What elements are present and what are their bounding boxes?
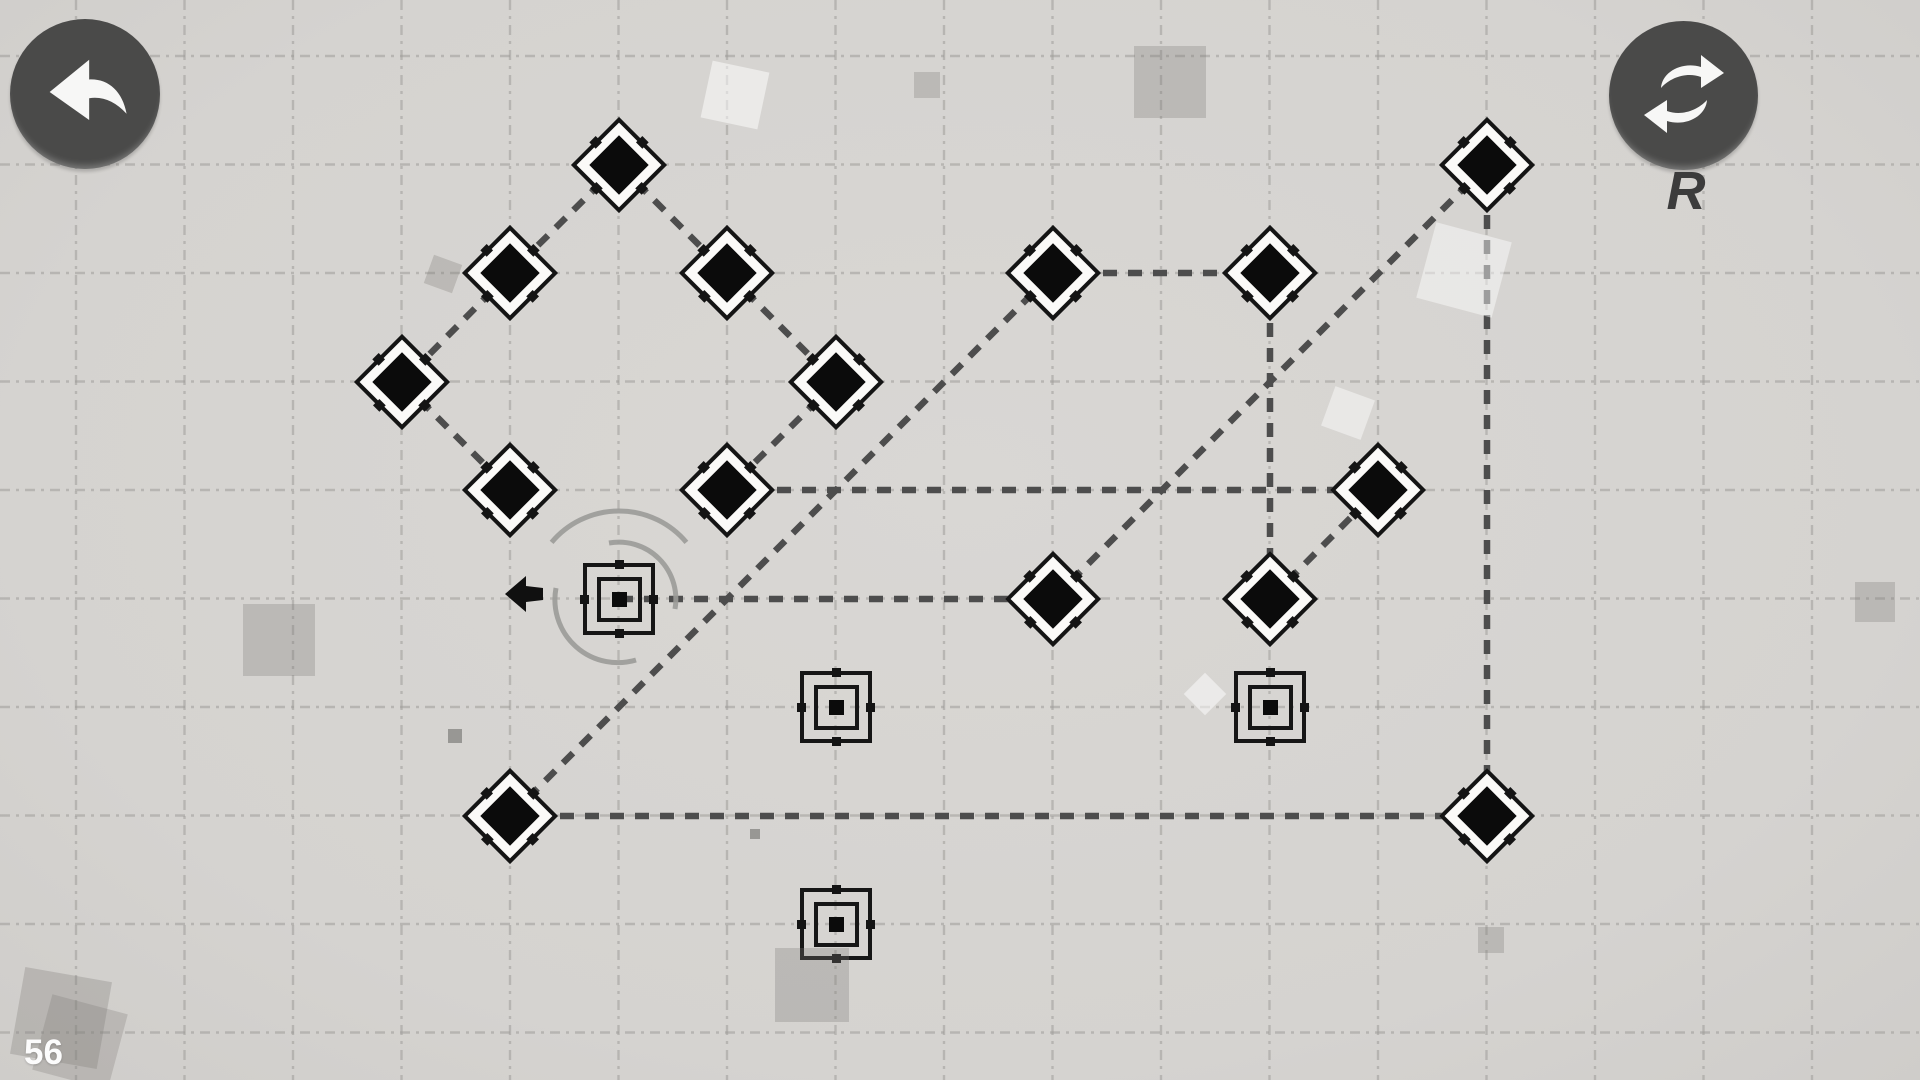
diamond-piece[interactable] — [1019, 239, 1087, 307]
diamond-piece[interactable] — [476, 782, 544, 850]
diamond-piece[interactable] — [1236, 565, 1304, 633]
diamond-piece[interactable] — [1344, 456, 1412, 524]
diamond-piece[interactable] — [585, 131, 653, 199]
diamond-piece[interactable] — [476, 239, 544, 307]
diamond-piece[interactable] — [693, 239, 761, 307]
target-socket-node — [800, 888, 872, 960]
restart-button[interactable] — [1609, 21, 1758, 170]
target-socket-node — [1234, 671, 1306, 743]
puzzle-board — [0, 0, 1920, 1080]
start-socket-node[interactable] — [583, 563, 655, 635]
diamond-piece[interactable] — [368, 348, 436, 416]
diamond-piece[interactable] — [802, 348, 870, 416]
diamond-piece[interactable] — [693, 456, 761, 524]
restart-cycle-icon — [1634, 44, 1734, 147]
diamond-piece[interactable] — [1019, 565, 1087, 633]
diamond-piece[interactable] — [1236, 239, 1304, 307]
diamond-piece[interactable] — [1453, 131, 1521, 199]
undo-button[interactable] — [10, 19, 160, 169]
path-edge — [510, 273, 1053, 816]
diamond-piece[interactable] — [1453, 782, 1521, 850]
target-socket-node — [800, 671, 872, 743]
diamond-piece[interactable] — [476, 456, 544, 524]
undo-arrow-icon — [33, 41, 137, 148]
restart-key-hint: R — [1646, 160, 1726, 222]
level-counter: 56 — [24, 1033, 63, 1073]
game-canvas: R 56 — [0, 0, 1920, 1080]
